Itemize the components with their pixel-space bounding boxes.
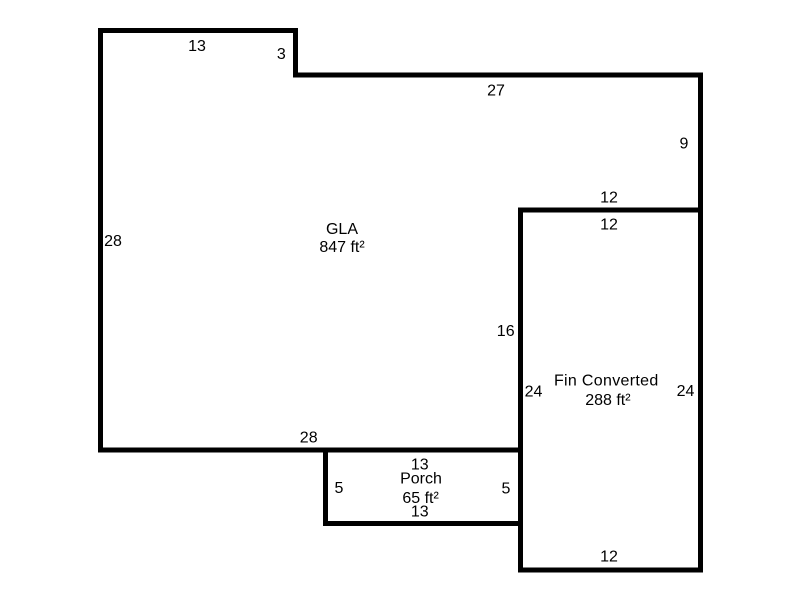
svg-text:5: 5 xyxy=(502,481,511,498)
svg-text:5: 5 xyxy=(335,480,344,497)
svg-text:13: 13 xyxy=(188,38,206,55)
svg-text:9: 9 xyxy=(680,136,689,153)
svg-text:28: 28 xyxy=(104,233,122,250)
svg-text:3: 3 xyxy=(277,46,286,63)
svg-text:Fin Converted: Fin Converted xyxy=(554,373,659,390)
svg-text:16: 16 xyxy=(497,323,515,340)
svg-text:12: 12 xyxy=(600,217,618,234)
svg-text:28: 28 xyxy=(300,430,318,447)
svg-text:12: 12 xyxy=(600,190,618,207)
svg-text:GLA: GLA xyxy=(326,221,358,238)
svg-text:Porch: Porch xyxy=(400,471,442,488)
svg-text:24: 24 xyxy=(525,384,543,401)
svg-text:288 ft²: 288 ft² xyxy=(585,392,631,409)
svg-text:24: 24 xyxy=(677,383,695,400)
svg-text:13: 13 xyxy=(411,504,429,521)
svg-text:27: 27 xyxy=(487,83,505,100)
svg-text:12: 12 xyxy=(600,549,618,566)
svg-text:847 ft²: 847 ft² xyxy=(319,239,365,256)
